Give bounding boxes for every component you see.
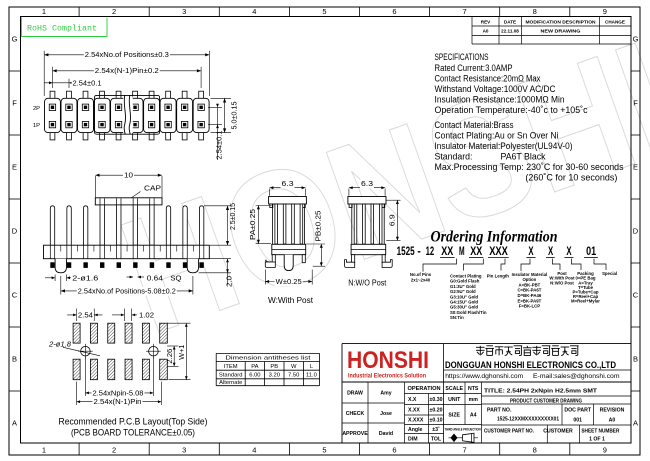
svg-text:CUSTOMER: CUSTOMER [543, 429, 573, 435]
svg-text:APPROVE: APPROVE [342, 431, 368, 437]
svg-text:2.54x(N-1)Pin±0.2: 2.54x(N-1)Pin±0.2 [95, 68, 159, 75]
svg-text:Alternate: Alternate [219, 380, 242, 386]
svg-text:4: 4 [252, 446, 256, 455]
svg-text:F: F [633, 99, 638, 108]
svg-text:C=BK-PA6T: C=BK-PA6T [517, 288, 541, 293]
svg-text:2.54±0.1: 2.54±0.1 [217, 130, 224, 159]
svg-text:XX: XX [441, 244, 453, 258]
svg-text:G: G [12, 35, 18, 44]
svg-text:E: E [12, 163, 17, 172]
svg-text:NEW DRAWING: NEW DRAWING [541, 29, 581, 34]
svg-text:A4: A4 [470, 413, 477, 419]
svg-text:W+1: W+1 [179, 345, 186, 360]
svg-text:2: 2 [112, 446, 116, 455]
svg-text:3: 3 [182, 446, 186, 455]
svg-text:9: 9 [603, 446, 607, 455]
svg-text:SIZE: SIZE [448, 413, 460, 419]
svg-text:2.54: 2.54 [78, 312, 93, 319]
svg-text:±0.20: ±0.20 [430, 408, 443, 414]
svg-text:±0.10: ±0.10 [430, 418, 443, 424]
svg-text:A=BK-PBT: A=BK-PBT [518, 282, 540, 287]
svg-text:DOC PART: DOC PART [564, 408, 592, 414]
svg-text:1: 1 [42, 446, 46, 455]
svg-text:W: W [291, 364, 297, 370]
svg-text:F: F [12, 99, 17, 108]
svg-text:REVISION: REVISION [600, 408, 625, 414]
svg-text:2P: 2P [33, 106, 40, 112]
svg-text:W:With Post: W:With Post [268, 296, 314, 305]
svg-text:SQ: SQ [170, 275, 182, 282]
svg-text:DONGGUAN HONSHI ELECTRONICS CO: DONGGUAN HONSHI ELECTRONICS CO.,LTD [445, 360, 616, 370]
svg-text:XXX: XXX [489, 244, 508, 258]
svg-text:X: X [566, 244, 571, 258]
svg-text:D: D [12, 227, 18, 236]
svg-text:±0.30: ±0.30 [430, 397, 443, 403]
svg-text:G: G [633, 35, 639, 44]
svg-text:22.11.08: 22.11.08 [501, 29, 519, 34]
svg-text:https://www.dghonshi.com: https://www.dghonshi.com [445, 373, 523, 380]
svg-text:CUSTOMER PART NO.: CUSTOMER PART NO. [484, 429, 534, 435]
svg-text:2.0: 2.0 [227, 276, 234, 287]
svg-text:HONSHI: HONSHI [347, 347, 429, 374]
svg-text:TOL: TOL [431, 436, 442, 442]
svg-text:CHANGE: CHANGE [605, 19, 625, 24]
svg-text:DRAW: DRAW [347, 391, 363, 397]
svg-text:PRODUCT CUSTOMER DRAWING: PRODUCT CUSTOMER DRAWING [510, 398, 582, 404]
svg-text:1: 1 [42, 7, 46, 16]
svg-text:Amy: Amy [380, 391, 391, 397]
svg-text:5: 5 [322, 7, 326, 16]
svg-text:-: - [417, 244, 420, 258]
svg-text:001: 001 [573, 418, 582, 424]
svg-text:X.XX: X.XX [408, 408, 420, 414]
svg-text:PA±0.25: PA±0.25 [250, 209, 257, 240]
svg-text:Insulation Resistance:1000MΩ: Insulation Resistance:1000MΩ Min [435, 95, 565, 105]
svg-text:6.00: 6.00 [249, 372, 260, 378]
svg-text:No.of Pins: No.of Pins [410, 272, 432, 277]
svg-text:SPECIFICATIONS: SPECIFICATIONS [435, 52, 489, 62]
svg-text:2.54x(N-1)Pin: 2.54x(N-1)Pin [94, 399, 142, 406]
svg-text:PA: PA [251, 364, 258, 370]
svg-text:MODIFICATION DESCRIPTION: MODIFICATION DESCRIPTION [526, 19, 597, 24]
svg-text:2.54±0.1: 2.54±0.1 [73, 80, 102, 87]
svg-text:C: C [633, 291, 639, 300]
svg-text:2.54xNpin-5.08: 2.54xNpin-5.08 [93, 390, 144, 397]
svg-text:PB±0.25: PB±0.25 [316, 210, 323, 241]
svg-text:A0: A0 [609, 418, 616, 424]
svg-text:X: X [528, 244, 533, 258]
svg-text:2.54xNo.of Positions±0.3: 2.54xNo.of Positions±0.3 [85, 52, 169, 59]
svg-text:Jose: Jose [380, 411, 392, 417]
svg-text:B: B [12, 355, 17, 364]
svg-text:E=BK-PA9T: E=BK-PA9T [518, 298, 542, 303]
svg-text:Withstand Voltage:1000V AC/D: Withstand Voltage:1000V AC/DC [435, 84, 557, 94]
svg-text:D=BK-PA46: D=BK-PA46 [518, 293, 542, 298]
svg-text:DIM: DIM [408, 436, 418, 442]
svg-text:NTS: NTS [468, 386, 479, 392]
svg-text:M=Reel+Mylar: M=Reel+Mylar [571, 299, 600, 304]
svg-text:TITLE: 2.54PH 2xNpin H2.5mm: TITLE: 2.54PH 2xNpin H2.5mm SMT [484, 389, 598, 395]
svg-text:12: 12 [426, 244, 435, 258]
svg-text:PART NO.: PART NO. [487, 408, 512, 414]
svg-text:Rated Current:3.0AMP: Rated Current:3.0AMP [435, 63, 513, 73]
svg-text:(PCB BOARD TOLERANCE±0.05): (PCB BOARD TOLERANCE±0.05) [71, 427, 195, 437]
svg-text:PB: PB [270, 364, 278, 370]
svg-text:2-ø1.6: 2-ø1.6 [72, 275, 98, 282]
svg-text:Max.Processing Temp: 230˚C: Max.Processing Temp: 230˚C for 30-60 sec… [435, 162, 625, 172]
svg-text:11.0: 11.0 [306, 372, 317, 378]
svg-text:0.64: 0.64 [147, 275, 163, 282]
svg-text:1 OF 1: 1 OF 1 [589, 437, 605, 443]
svg-text:Standard: Standard [219, 372, 243, 378]
svg-text:C: C [12, 291, 18, 300]
svg-text:Special: Special [602, 271, 617, 276]
svg-text:Insulator Material: Insulator Material [512, 272, 548, 277]
svg-text:8: 8 [533, 446, 537, 455]
svg-text:Insulator Material:Polyester(: Insulator Material:Polyester(UL94V-0) [435, 141, 573, 151]
svg-text:6: 6 [392, 446, 396, 455]
svg-text:PA6T Black: PA6T Black [501, 152, 547, 162]
svg-text:N:W/O Post: N:W/O Post [348, 279, 387, 288]
svg-text:SN:Tin: SN:Tin [450, 315, 464, 320]
svg-text:Angle: Angle [408, 427, 423, 433]
svg-text:1P: 1P [33, 123, 40, 129]
svg-text:5.0±0.15: 5.0±0.15 [232, 101, 239, 129]
svg-text:M: M [459, 244, 465, 258]
svg-text:Pin Length: Pin Length [487, 274, 510, 279]
svg-text:3: 3 [182, 7, 186, 16]
svg-text:Contact Resistance:20mΩ Max: Contact Resistance:20mΩ Max [435, 73, 542, 83]
svg-text:Dimension antitheses list: Dimension antitheses list [225, 355, 311, 361]
svg-text:E-mail:sales@dghonshi.com: E-mail:sales@dghonshi.com [533, 373, 620, 380]
svg-text:2.26: 2.26 [167, 349, 174, 364]
svg-text:A: A [633, 419, 638, 428]
svg-text:7: 7 [463, 446, 467, 455]
svg-text:6.3: 6.3 [361, 181, 373, 188]
svg-text:Recommended P.C.B Layout(Top: Recommended P.C.B Layout(Top Side) [59, 416, 208, 426]
svg-text:2.5±0.15: 2.5±0.15 [230, 203, 237, 230]
svg-text:2-ø1.8: 2-ø1.8 [48, 342, 71, 349]
svg-text:01: 01 [586, 244, 596, 258]
svg-text:OPERATION: OPERATION [408, 386, 441, 392]
svg-text:mm: mm [469, 397, 479, 403]
svg-text:CAP: CAP [144, 184, 161, 193]
svg-text:David: David [379, 431, 393, 437]
svg-text:N:W/O Post: N:W/O Post [550, 281, 574, 286]
svg-text:2: 2 [112, 7, 116, 16]
svg-text:W±0.25: W±0.25 [276, 279, 302, 286]
svg-text:Industrial Electronics Solutio: Industrial Electronics Solution [348, 374, 426, 380]
svg-text:Contact Material:Brass: Contact Material:Brass [435, 120, 515, 130]
svg-text:5: 5 [322, 446, 326, 455]
svg-text:Option: Option [522, 277, 536, 282]
svg-text:Operation Temperature:-40˚c: Operation Temperature:-40˚c to +105˚c [435, 105, 589, 115]
svg-text:E: E [633, 163, 638, 172]
svg-text:±3˚: ±3˚ [432, 426, 440, 433]
svg-text:RoHS Compliant: RoHS Compliant [27, 24, 97, 34]
svg-text:Contact Plating:Au or Sn O: Contact Plating:Au or Sn Over Ni [435, 131, 559, 141]
svg-text:THIRD ANGLE PROJECTION: THIRD ANGLE PROJECTION [445, 428, 482, 432]
svg-text:A: A [12, 419, 17, 428]
svg-text:F=BK-LCP: F=BK-LCP [519, 304, 540, 309]
svg-text:8: 8 [533, 7, 537, 16]
svg-text:6: 6 [392, 7, 396, 16]
svg-text:SHEET NUMBER: SHEET NUMBER [581, 429, 619, 435]
svg-text:2.54xNo.of Positions-5.08±0.2: 2.54xNo.of Positions-5.08±0.2 [78, 288, 176, 295]
svg-text:UNIT: UNIT [448, 397, 461, 403]
svg-text:DATE: DATE [504, 19, 516, 24]
svg-text:CHECK: CHECK [346, 411, 365, 417]
svg-text:(260˚C for 10 seconds): (260˚C for 10 seconds) [525, 173, 617, 183]
svg-text:1.02: 1.02 [139, 312, 154, 319]
svg-text:SCALE: SCALE [445, 386, 463, 392]
svg-text:6.3: 6.3 [282, 181, 294, 188]
svg-text:REV: REV [481, 19, 491, 24]
svg-text:1525-12XXMXXXXXXXXX01: 1525-12XXMXXXXXXXXX01 [497, 417, 559, 423]
svg-text:Standard:: Standard: [435, 152, 473, 162]
svg-text:10: 10 [124, 173, 133, 180]
svg-text:6.9: 6.9 [390, 214, 397, 226]
svg-text:A0: A0 [483, 29, 489, 34]
svg-text:2x1~2x40: 2x1~2x40 [411, 278, 431, 283]
svg-text:3.20: 3.20 [269, 372, 280, 378]
svg-text:X: X [548, 244, 553, 258]
svg-text:X.X: X.X [408, 397, 417, 403]
svg-text:Ordering Information: Ordering Information [431, 229, 558, 246]
svg-text:4: 4 [252, 7, 256, 16]
svg-text:D: D [633, 227, 639, 236]
svg-text:1525: 1525 [397, 244, 415, 258]
svg-text:X.XXX: X.XXX [408, 418, 424, 424]
svg-text:XX: XX [470, 244, 482, 258]
svg-text:B: B [633, 355, 638, 364]
svg-text:ITEM: ITEM [224, 364, 238, 370]
svg-text:7.50: 7.50 [288, 372, 299, 378]
svg-text:9: 9 [603, 7, 607, 16]
svg-text:7: 7 [463, 7, 467, 16]
